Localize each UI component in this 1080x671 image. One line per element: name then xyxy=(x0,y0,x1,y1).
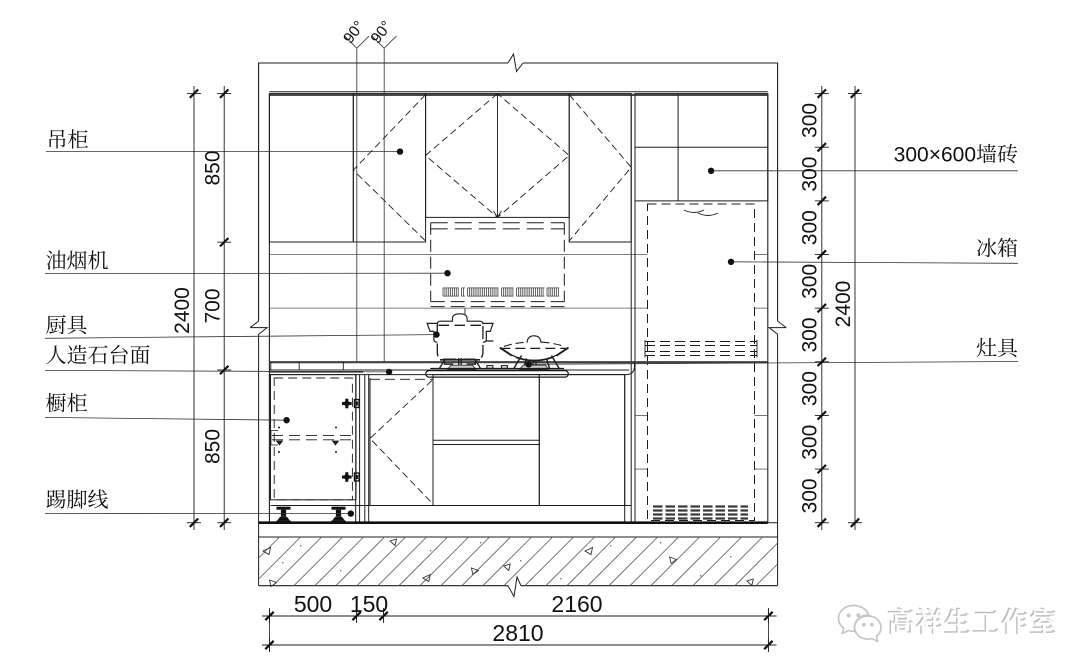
svg-text:2160: 2160 xyxy=(551,591,602,617)
svg-text:300×600墙砖: 300×600墙砖 xyxy=(894,139,1018,169)
svg-text:300: 300 xyxy=(799,157,822,192)
svg-text:850: 850 xyxy=(202,150,225,185)
svg-text:300: 300 xyxy=(799,371,822,406)
svg-text:300: 300 xyxy=(799,264,822,299)
svg-text:冰箱: 冰箱 xyxy=(976,233,1018,263)
svg-text:踢脚线: 踢脚线 xyxy=(46,484,109,514)
svg-text:人造石台面: 人造石台面 xyxy=(46,340,151,370)
svg-text:300: 300 xyxy=(799,210,822,245)
svg-text:厨具: 厨具 xyxy=(46,310,88,340)
svg-text:2400: 2400 xyxy=(171,287,194,334)
svg-text:300: 300 xyxy=(799,478,822,513)
svg-text:850: 850 xyxy=(202,429,225,464)
svg-text:150: 150 xyxy=(350,591,388,617)
svg-text:橱柜: 橱柜 xyxy=(46,388,88,418)
svg-text:油烟机: 油烟机 xyxy=(46,245,109,275)
svg-text:灶具: 灶具 xyxy=(976,333,1018,363)
svg-text:500: 500 xyxy=(294,591,332,617)
svg-text:700: 700 xyxy=(202,288,225,323)
svg-text:300: 300 xyxy=(799,425,822,460)
svg-text:高祥生工作室: 高祥生工作室 xyxy=(888,602,1059,642)
svg-text:300: 300 xyxy=(799,103,822,138)
svg-text:吊柜: 吊柜 xyxy=(47,124,89,154)
svg-text:2810: 2810 xyxy=(492,620,543,646)
svg-text:300: 300 xyxy=(799,317,822,352)
svg-text:2400: 2400 xyxy=(832,281,855,328)
